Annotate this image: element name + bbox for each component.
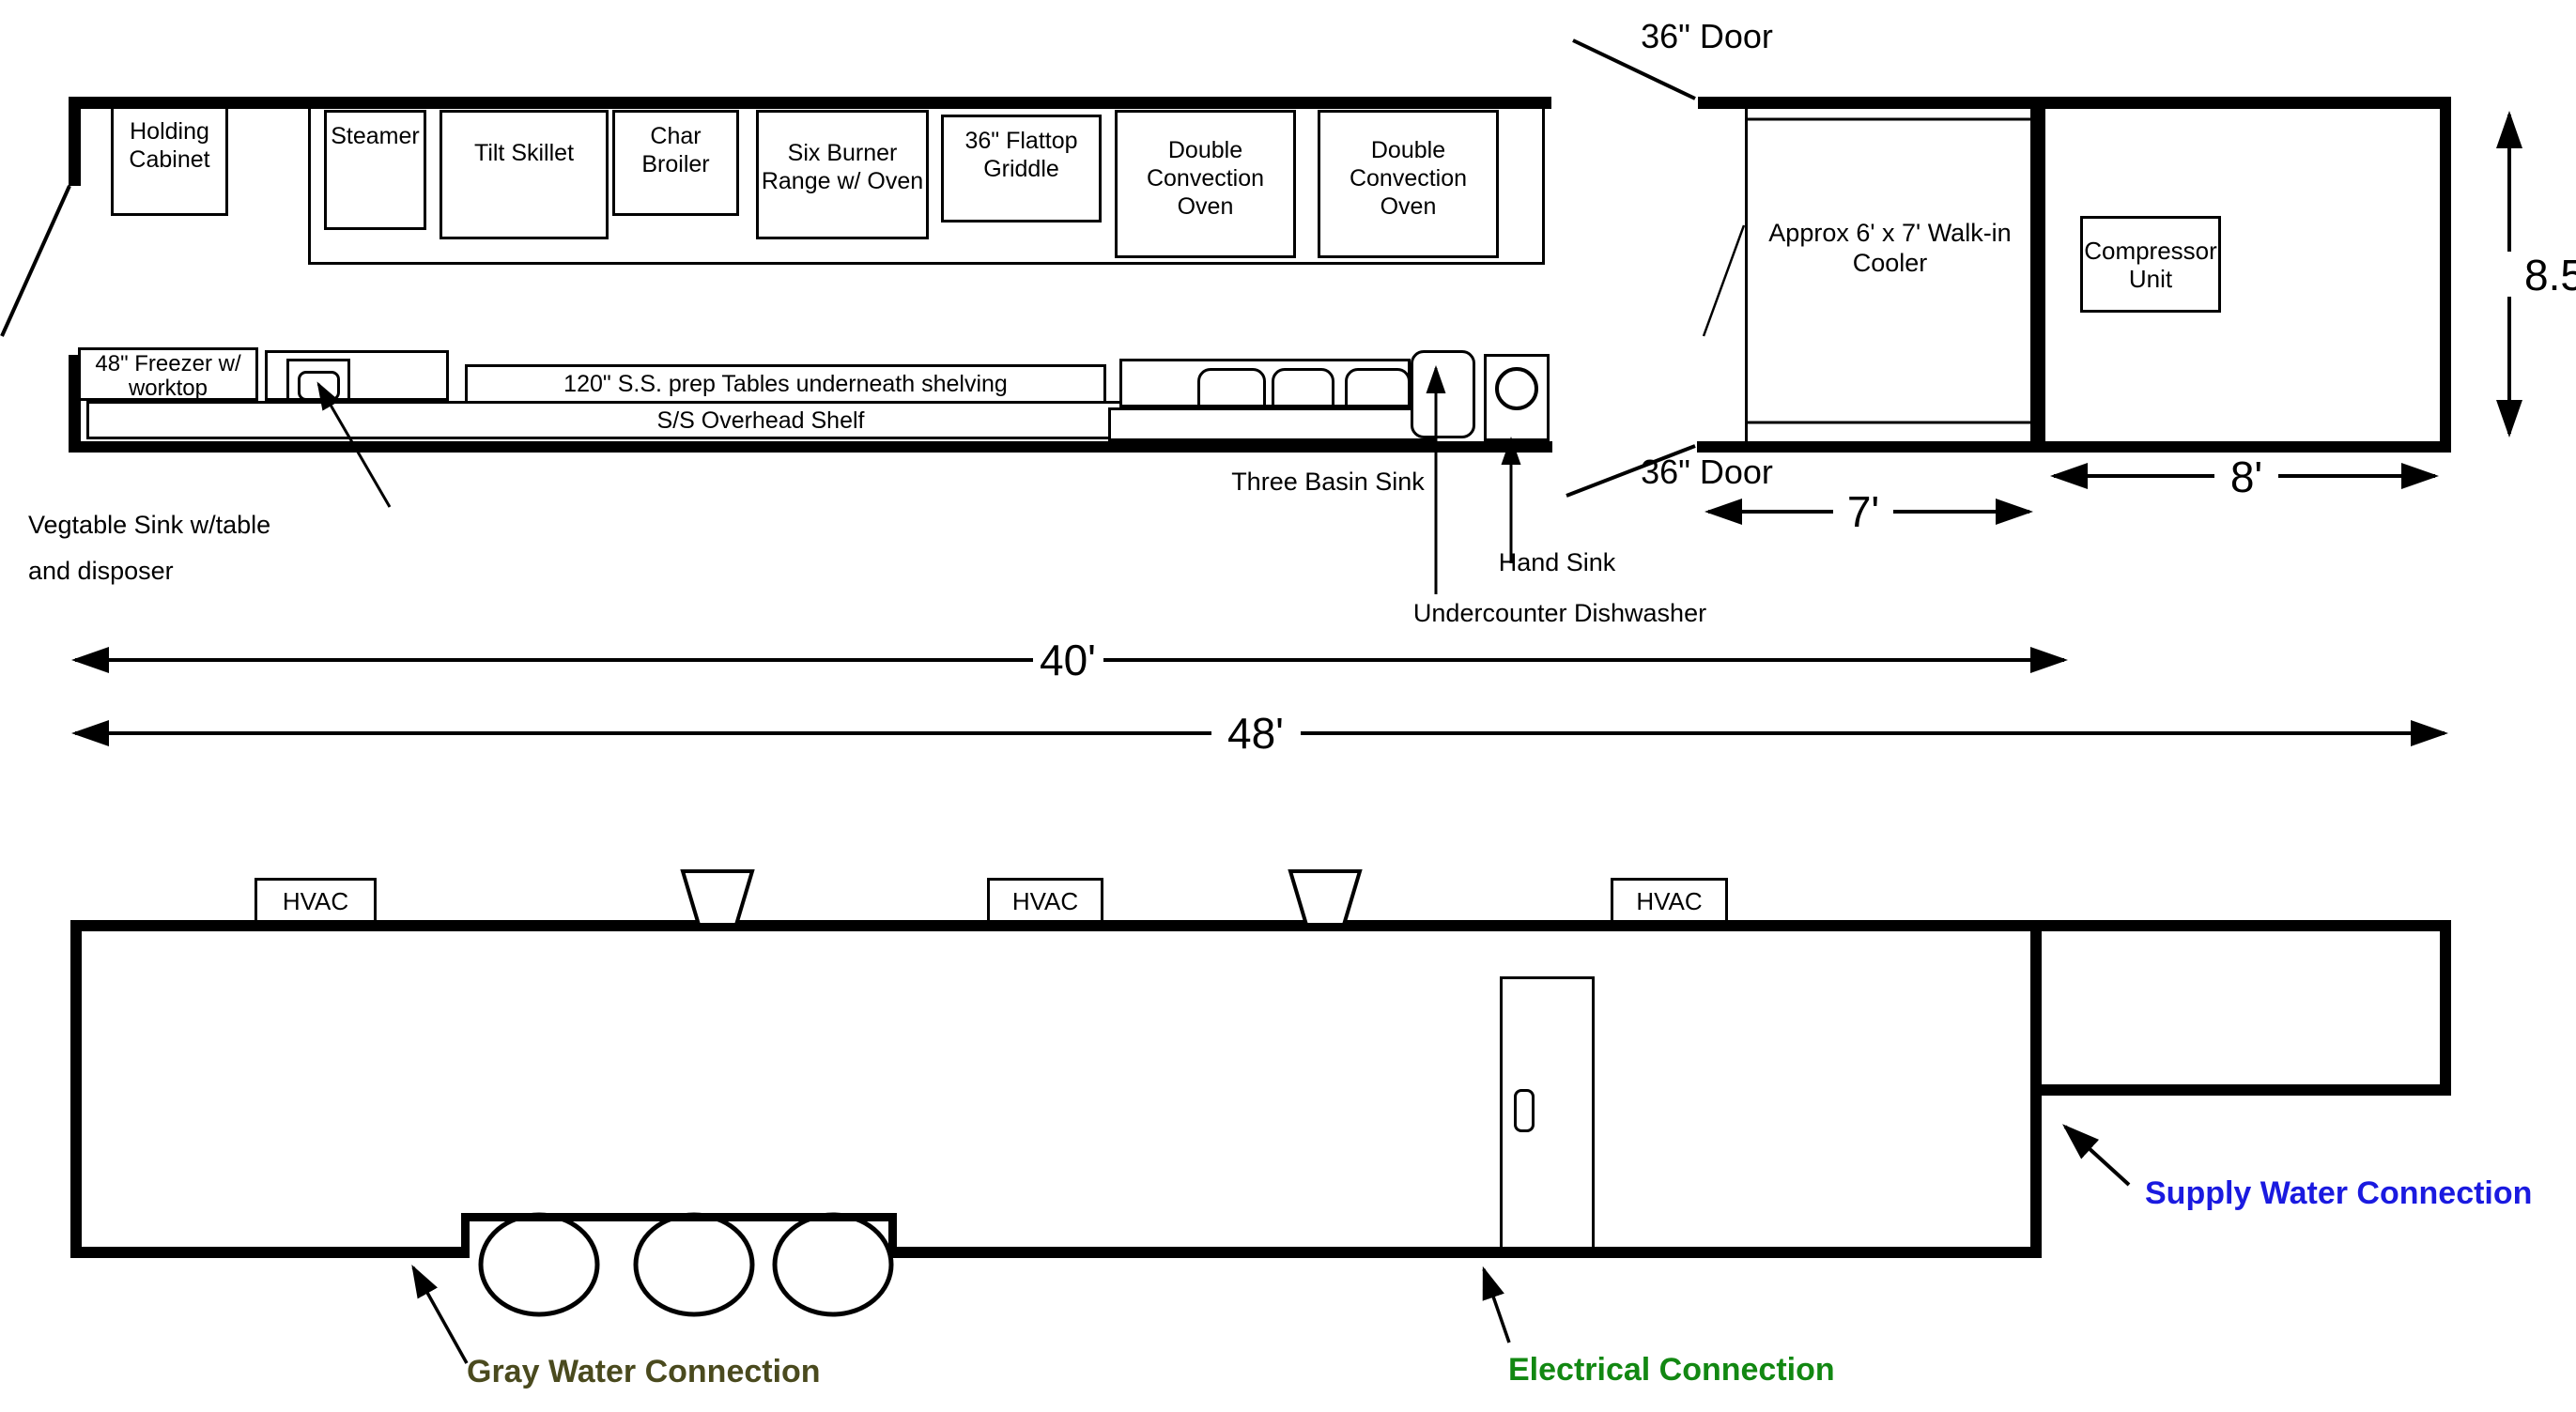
door-bottom-label: 36" Door: [1587, 453, 1827, 492]
sink-basin-2: [1272, 368, 1334, 407]
hvac-unit-2: HVAC: [987, 878, 1103, 925]
dimension-8ft: 8': [2199, 452, 2293, 502]
six-burner-range: Six Burner Range w/ Oven: [756, 110, 929, 239]
sink-drainboard: [1411, 350, 1475, 438]
freezer-worktop: 48" Freezer w/ worktop: [78, 347, 258, 401]
hvac-unit-2-label: HVAC: [1012, 887, 1078, 915]
flattop-griddle-label: 36" Flattop Griddle: [944, 127, 1099, 183]
hvac-unit-3-label: HVAC: [1636, 887, 1702, 915]
sink-lower-counter: [1108, 407, 1435, 441]
char-broiler: Char Broiler: [612, 110, 739, 216]
sink-basin-3: [1345, 368, 1411, 407]
tilt-skillet: Tilt Skillet: [440, 110, 609, 239]
connection-arrows: [413, 1127, 2129, 1363]
gray-water-tanks: [481, 1215, 891, 1314]
double-convection-oven-1-label: Double Convection Oven: [1118, 136, 1293, 221]
char-broiler-label: Char Broiler: [615, 122, 736, 178]
hand-sink-label: Hand Sink: [1463, 547, 1651, 577]
dimension-40ft: 40': [1021, 635, 1115, 685]
gray-water-connection-label: Gray Water Connection: [467, 1354, 821, 1390]
vegetable-sink-label-line1: Vegtable Sink w/table: [28, 510, 270, 540]
steamer: Steamer: [324, 110, 426, 230]
walk-in-cooler-label: Approx 6' x 7' Walk-in Cooler: [1756, 218, 2024, 278]
dimension-48ft: 48': [1209, 708, 1303, 759]
six-burner-range-label: Six Burner Range w/ Oven: [759, 139, 926, 195]
vegetable-sink-basin: [298, 371, 340, 401]
compressor-unit-label: Compressor Unit: [2083, 237, 2218, 293]
prep-tables: 120" S.S. prep Tables underneath shelvin…: [465, 364, 1106, 404]
bottom-view-walls: [70, 920, 2451, 1258]
hvac-unit-1: HVAC: [255, 878, 377, 925]
double-convection-oven-1: Double Convection Oven: [1115, 110, 1296, 258]
dimension-8-5ft: 8.5': [2524, 250, 2576, 300]
hvac-unit-1-label: HVAC: [283, 887, 348, 915]
electrical-connection-label: Electrical Connection: [1508, 1352, 1835, 1389]
prep-tables-label: 120" S.S. prep Tables underneath shelvin…: [563, 370, 1008, 398]
supply-water-connection-label: Supply Water Connection: [2145, 1175, 2532, 1212]
exterior-door-handle: [1514, 1089, 1535, 1132]
three-basin-sink-label: Three Basin Sink: [1211, 467, 1445, 497]
undercounter-dishwasher-label: Undercounter Dishwasher: [1372, 598, 1748, 628]
double-convection-oven-2-label: Double Convection Oven: [1320, 136, 1496, 221]
overhead-shelf-label: S/S Overhead Shelf: [657, 407, 865, 435]
holding-cabinet: Holding Cabinet: [111, 105, 228, 216]
hand-sink-unit: [1484, 354, 1550, 441]
tilt-skillet-label: Tilt Skillet: [474, 139, 574, 167]
flattop-griddle: 36" Flattop Griddle: [941, 115, 1102, 223]
hvac-unit-3: HVAC: [1611, 878, 1728, 925]
compressor-unit: Compressor Unit: [2080, 216, 2221, 313]
steamer-label: Steamer: [331, 122, 419, 150]
freezer-worktop-label: 48" Freezer w/ worktop: [81, 352, 255, 401]
food-trailer-floor-plan: Holding Cabinet Steamer Tilt Skillet Cha…: [0, 0, 2576, 1412]
sink-basin-1: [1197, 368, 1266, 407]
double-convection-oven-2: Double Convection Oven: [1318, 110, 1499, 258]
dimension-7ft: 7': [1816, 486, 1910, 537]
door-top-label: 36" Door: [1587, 17, 1827, 56]
holding-cabinet-label: Holding Cabinet: [114, 117, 225, 174]
vegetable-sink-label-line2: and disposer: [28, 556, 174, 586]
